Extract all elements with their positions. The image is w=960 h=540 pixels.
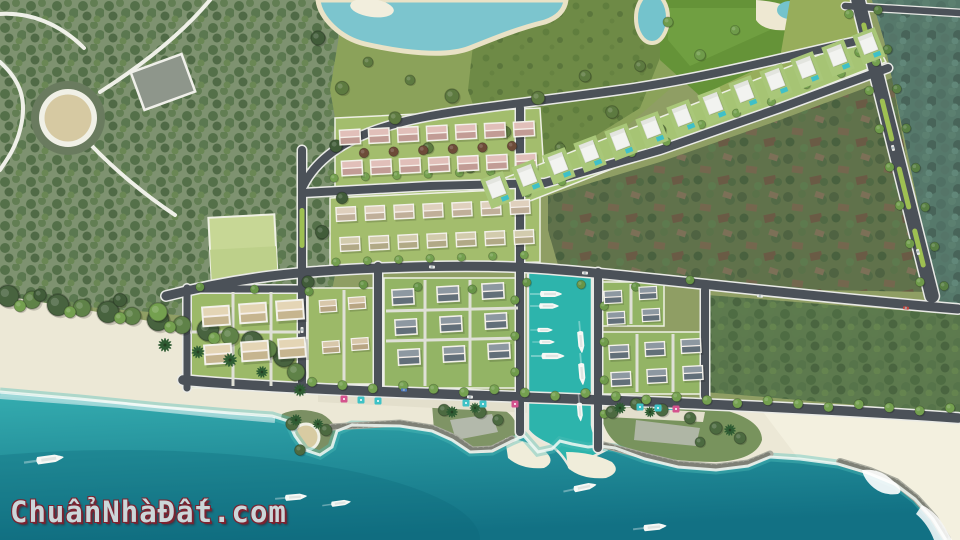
car (429, 265, 435, 268)
gray-villa-block-west (391, 282, 513, 368)
pink-roof-villa (341, 159, 365, 178)
car (401, 388, 407, 391)
umbrella (637, 404, 644, 411)
beige-villa (238, 301, 270, 326)
umbrella (341, 396, 348, 403)
small-villa (319, 299, 339, 315)
tan-roof-villa (451, 201, 474, 219)
olive-roof-villa (513, 229, 536, 247)
pink-roof-villa (370, 158, 394, 177)
beige-villa (277, 336, 309, 361)
gray-roof-villa (610, 371, 633, 389)
gray-roof-villa (638, 286, 659, 302)
umbrella (655, 405, 662, 412)
small-villa (348, 296, 368, 312)
umbrella (358, 397, 365, 404)
aerial-masterplan-screenshot: ChuẩnNhàĐất.com (0, 0, 960, 540)
small-villa (322, 340, 342, 356)
tan-roof-villa (393, 203, 416, 221)
gray-roof-villa (439, 315, 465, 335)
olive-roof-villa (339, 236, 362, 254)
gray-roof-villa (641, 308, 662, 324)
gray-roof-villa (682, 365, 705, 383)
pink-roof-villa (399, 157, 423, 176)
olive-roof-villa (368, 235, 391, 253)
gray-roof-villa (606, 311, 627, 327)
gray-roof-villa (442, 345, 468, 365)
pink-roof-villa (428, 156, 452, 175)
pink-roof-villa (486, 154, 510, 173)
gray-roof-villa (644, 341, 667, 359)
umbrella (480, 401, 487, 408)
beige-villa (275, 298, 307, 323)
blue-car (401, 388, 407, 391)
umbrella (463, 400, 470, 407)
pink-roof-villa (368, 127, 392, 146)
beige-villa (240, 339, 272, 364)
beige-villa (201, 304, 233, 329)
gray-roof-villa (397, 348, 423, 368)
gray-roof-villa (484, 312, 510, 332)
tan-roof-villa (509, 199, 532, 217)
gray-roof-villa (391, 288, 417, 308)
gray-roof-villa (487, 342, 513, 362)
car (301, 327, 304, 333)
small-villa (351, 337, 371, 353)
gray-roof-villa (680, 338, 703, 356)
olive-roof-villa (484, 230, 507, 248)
pink-roof-villa (339, 128, 363, 147)
park-plaza (31, 81, 105, 155)
gray-roof-villa (394, 318, 420, 338)
watermark: ChuẩnNhàĐất.com (10, 497, 287, 529)
pink-roof-villa (426, 124, 450, 143)
olive-roof-villa (397, 233, 420, 251)
olive-roof-villa (426, 232, 449, 250)
tan-roof-villa (422, 202, 445, 220)
pink-roof-villa (397, 126, 421, 145)
masterplan-render (0, 0, 960, 540)
olive-roof-villa (455, 231, 478, 249)
gray-roof-villa (646, 368, 669, 386)
pink-roof-villa (513, 120, 537, 139)
tan-roof-villa (364, 205, 387, 223)
umbrella (375, 398, 382, 405)
gray-roof-villa (481, 282, 507, 302)
car (757, 294, 763, 298)
car (467, 395, 473, 398)
pink-roof-villa (457, 155, 481, 174)
car (582, 271, 588, 274)
gray-roof-villa (436, 285, 462, 305)
gray-roof-villa (608, 344, 631, 362)
pink-roof-villa (455, 123, 479, 142)
pink-roof-villa (484, 122, 508, 141)
gray-roof-villa (603, 290, 624, 306)
tan-roof-villa (335, 206, 358, 224)
umbrella (512, 401, 519, 408)
umbrella (673, 406, 680, 413)
